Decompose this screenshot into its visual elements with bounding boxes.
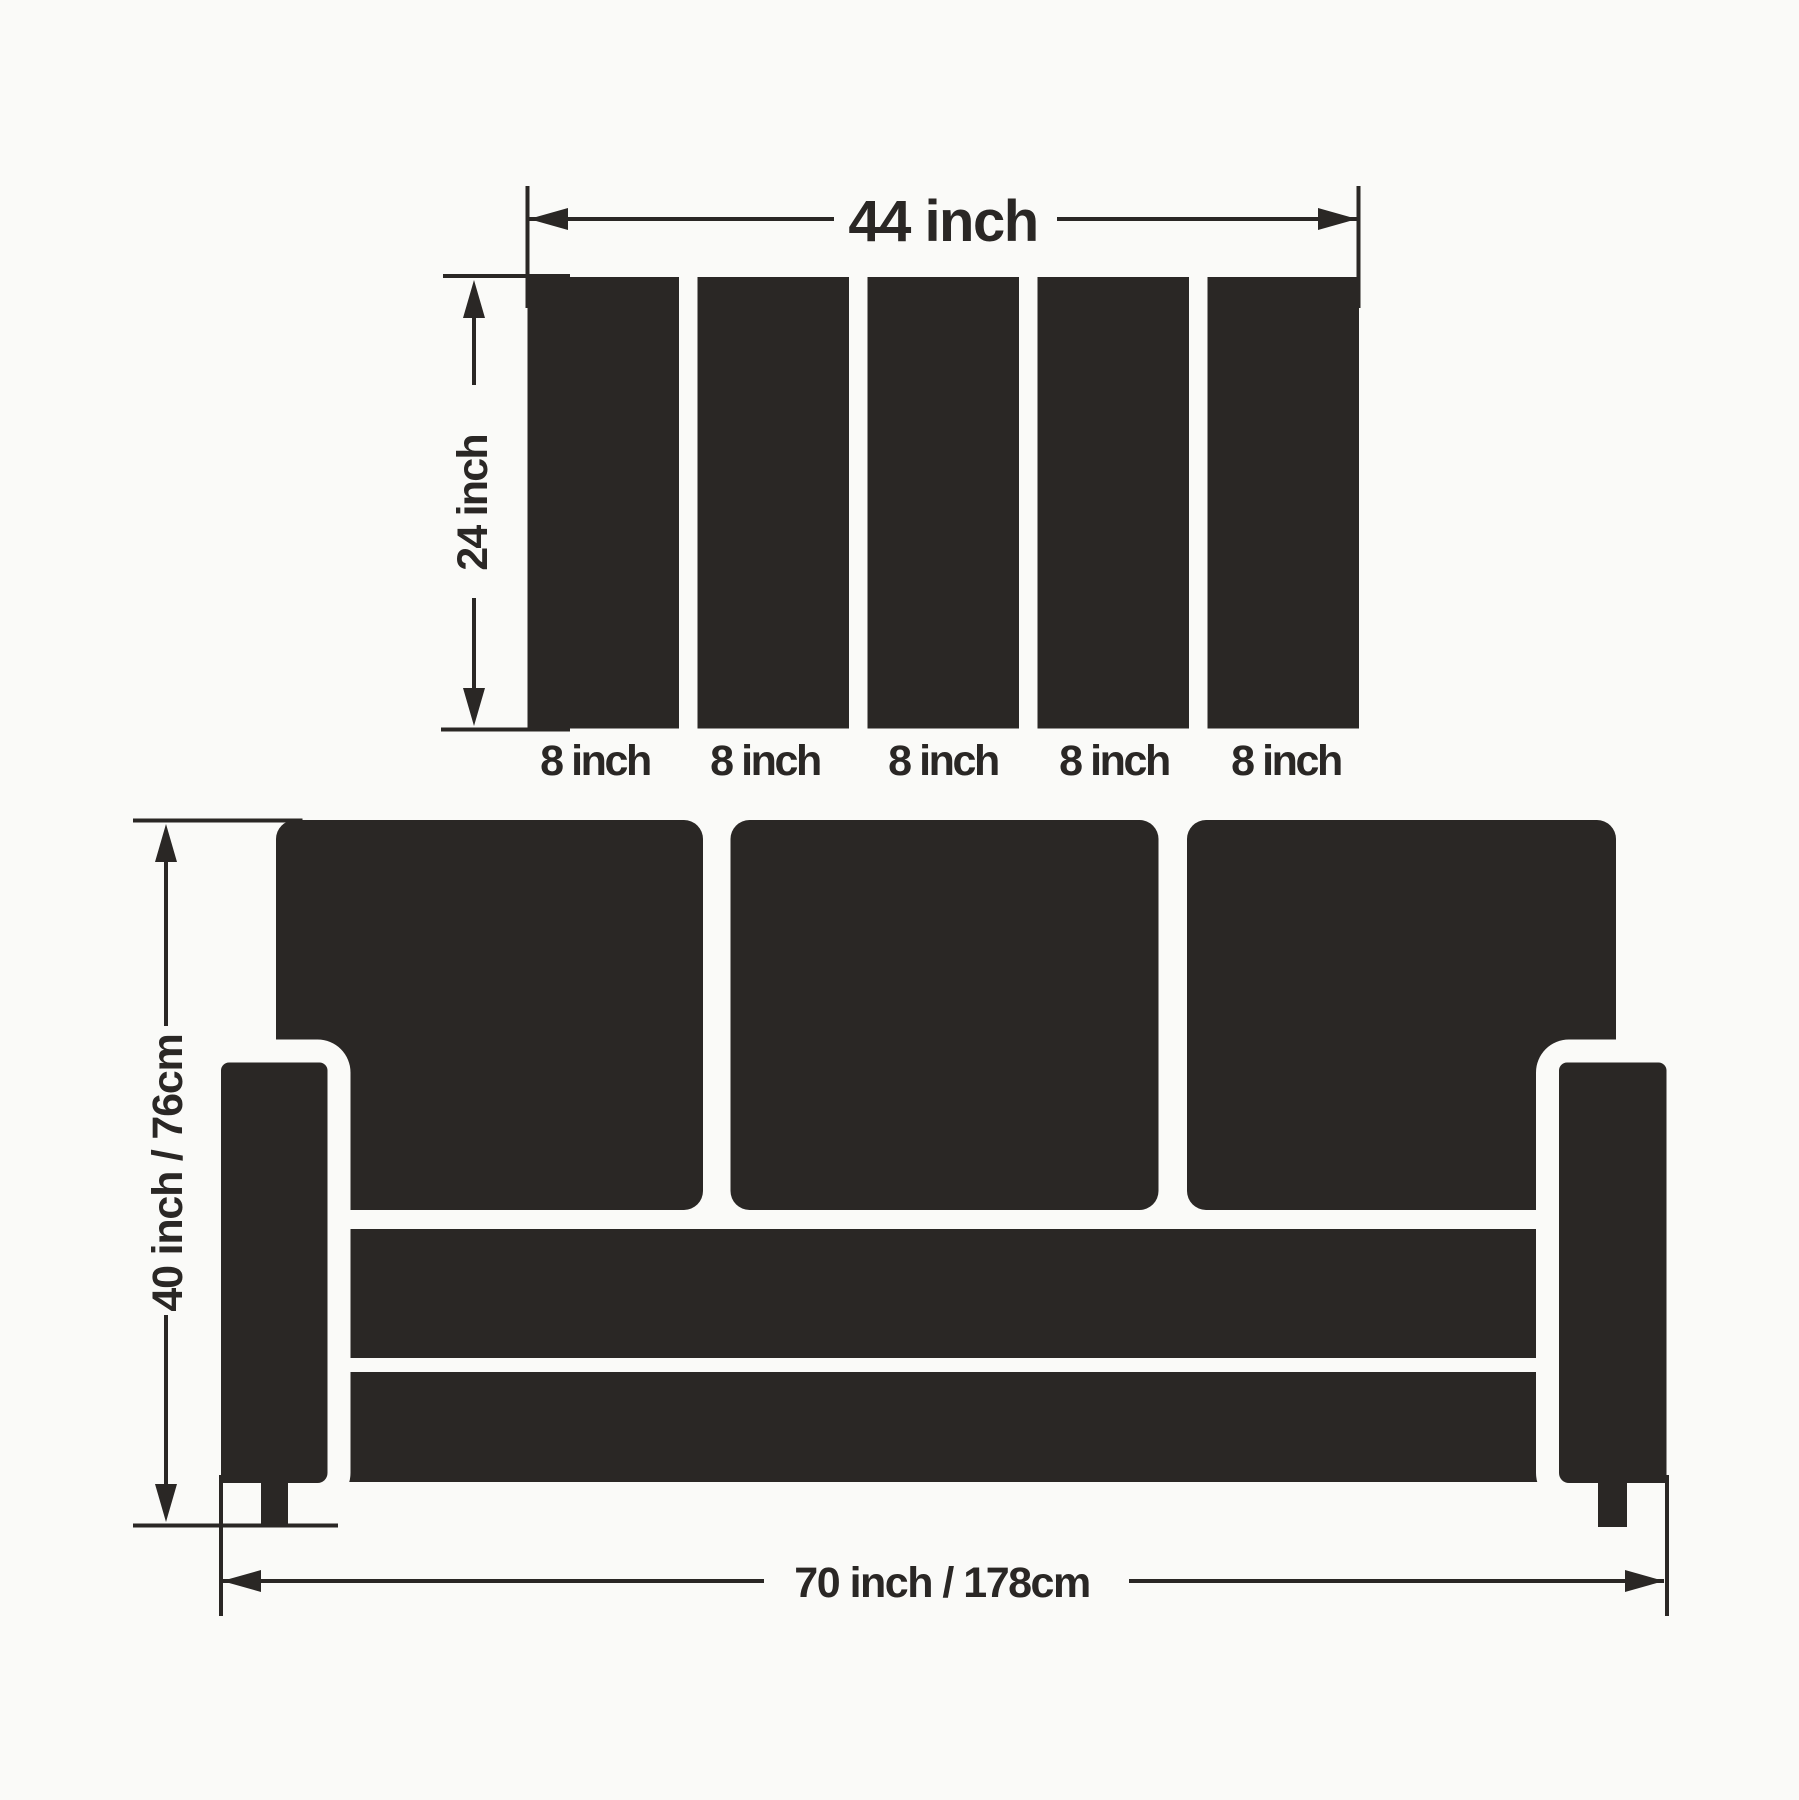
svg-text:8 inch: 8 inch — [888, 737, 998, 785]
svg-text:40 inch / 76cm: 40 inch / 76cm — [144, 1034, 192, 1311]
svg-text:8 inch: 8 inch — [710, 737, 820, 785]
svg-text:24 inch: 24 inch — [449, 435, 497, 571]
svg-text:8 inch: 8 inch — [1059, 737, 1169, 785]
svg-text:8 inch: 8 inch — [1231, 737, 1341, 785]
svg-text:70 inch / 178cm: 70 inch / 178cm — [794, 1559, 1089, 1607]
svg-text:8 inch: 8 inch — [540, 737, 650, 785]
svg-text:44 inch: 44 inch — [848, 189, 1037, 254]
